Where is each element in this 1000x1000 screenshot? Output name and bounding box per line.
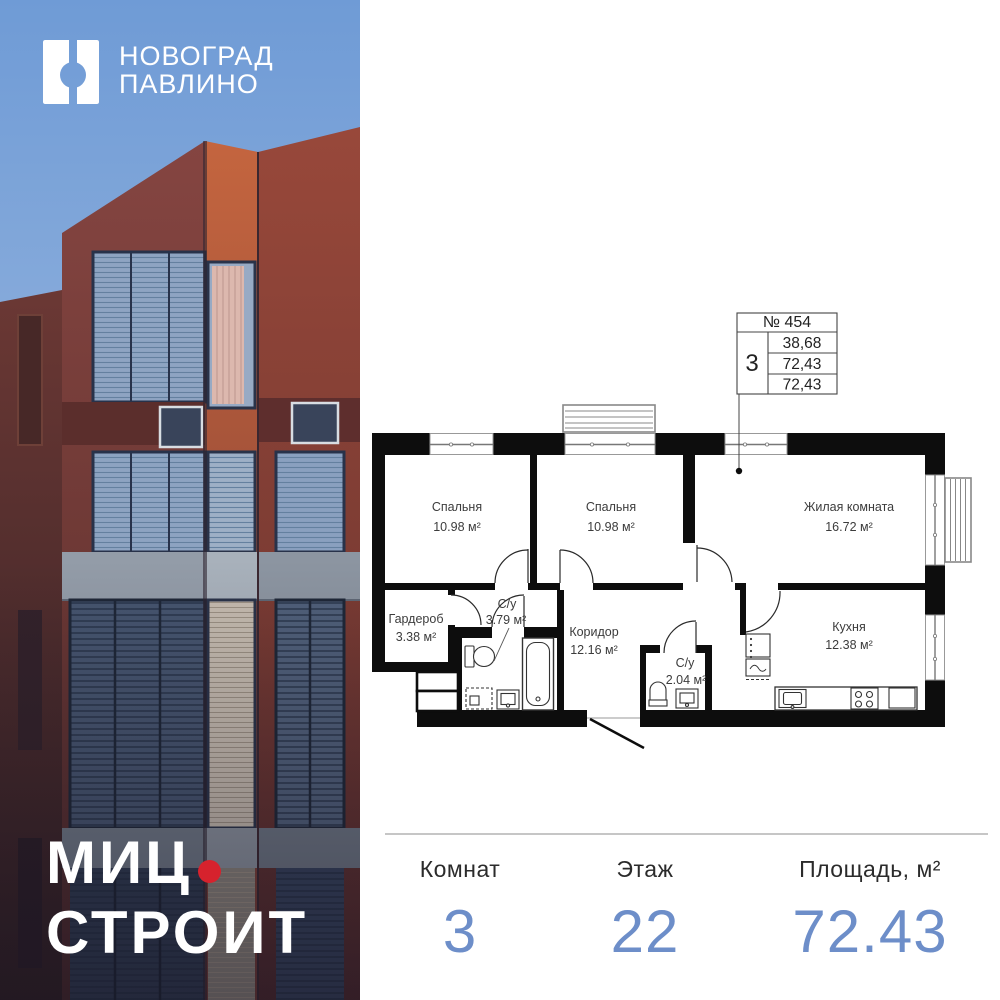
- balcony-right: [945, 478, 971, 562]
- room-area: 10.98 м²: [433, 520, 481, 534]
- room-area: 12.16 м²: [570, 643, 618, 657]
- room-area: 3.38 м²: [396, 630, 437, 644]
- curtain-window: [208, 262, 255, 408]
- unit-area-reduced: 72,43: [783, 377, 822, 394]
- small-window: [292, 403, 338, 443]
- stat-floor: Этаж 22: [565, 856, 725, 966]
- room-name: Спальня: [432, 500, 482, 514]
- brand-dot-icon: [198, 860, 221, 883]
- building-photo-panel: НОВОГРАД ПАВЛИНО МИЦ СТРОИТ: [0, 0, 360, 1000]
- floor-plan: № 454 3 38,68 72,43 72,43 Спальня 10.98 …: [360, 290, 1000, 750]
- room-area: 12.38 м²: [825, 638, 873, 652]
- unit-info-panel: № 454 3 38,68 72,43 72,43 Спальня 10.98 …: [360, 0, 1000, 1000]
- entrance-door: [590, 719, 644, 748]
- unit-area-total: 72,43: [783, 356, 822, 373]
- logo-mark-icon: [43, 40, 99, 104]
- small-window: [160, 407, 202, 447]
- brand-wordmark: МИЦ СТРОИТ: [46, 828, 308, 968]
- stat-label: Площадь, м²: [750, 856, 990, 883]
- utility-shafts: [417, 672, 458, 711]
- logo-text: НОВОГРАД ПАВЛИНО: [119, 42, 274, 98]
- stats-divider: [385, 833, 988, 835]
- stat-area: Площадь, м² 72.43: [750, 856, 990, 966]
- brand-line-1: МИЦ: [46, 828, 308, 898]
- brand-line-2: СТРОИТ: [46, 898, 308, 968]
- balcony-top: [563, 405, 655, 432]
- room-name: С/у: [498, 597, 518, 611]
- room-name: Кухня: [832, 620, 865, 634]
- stat-value: 3: [390, 897, 530, 966]
- stat-label: Этаж: [565, 856, 725, 883]
- listing-card: НОВОГРАД ПАВЛИНО МИЦ СТРОИТ: [0, 0, 1000, 1000]
- stat-value: 22: [565, 897, 725, 966]
- balcony-window: [93, 252, 205, 402]
- room-name: Коридор: [569, 625, 618, 639]
- unit-rooms-count: 3: [745, 350, 758, 377]
- room-name: Жилая комната: [804, 500, 894, 514]
- unit-area-living: 38,68: [783, 335, 822, 352]
- room-area: 3.79 м²: [486, 613, 527, 627]
- room-area: 10.98 м²: [587, 520, 635, 534]
- room-name: Гардероб: [389, 612, 444, 626]
- room-name: С/у: [676, 656, 696, 670]
- stat-value: 72.43: [750, 897, 990, 966]
- stat-label: Комнат: [390, 856, 530, 883]
- stat-rooms: Комнат 3: [390, 856, 530, 966]
- unit-number: № 454: [763, 314, 811, 331]
- logo-line-1: НОВОГРАД: [119, 42, 274, 70]
- developer-logo: НОВОГРАД ПАВЛИНО: [43, 40, 274, 104]
- room-name: Спальня: [586, 500, 636, 514]
- unit-location-dot: [736, 468, 742, 474]
- room-area: 2.04 м²: [666, 673, 707, 687]
- room-area: 16.72 м²: [825, 520, 873, 534]
- logo-line-2: ПАВЛИНО: [119, 70, 274, 98]
